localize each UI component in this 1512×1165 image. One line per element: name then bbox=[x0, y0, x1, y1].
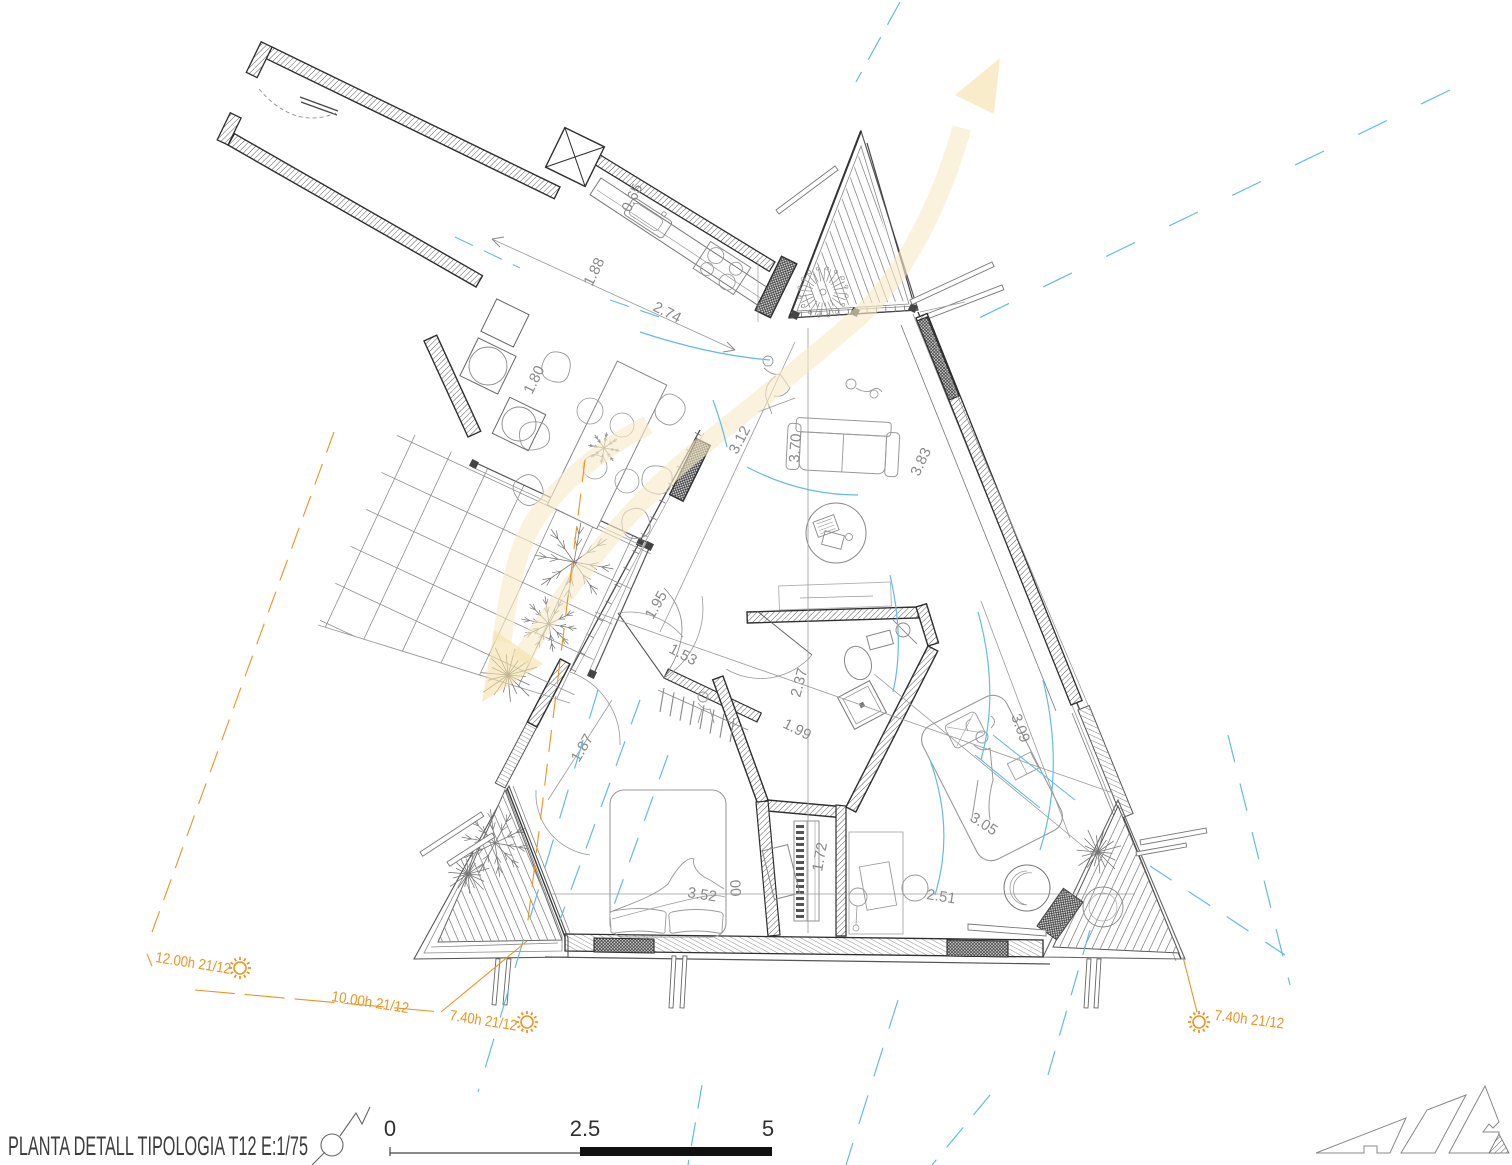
svg-text:0: 0 bbox=[384, 1116, 396, 1141]
svg-text:PLANTA DETALL TIPOLOGIA T12 E:: PLANTA DETALL TIPOLOGIA T12 E:1/75 bbox=[8, 1131, 308, 1161]
svg-text:5: 5 bbox=[762, 1116, 774, 1141]
svg-text:3.70: 3.70 bbox=[786, 433, 805, 463]
svg-text:2.5: 2.5 bbox=[570, 1116, 601, 1141]
svg-text:00: 00 bbox=[726, 879, 744, 897]
